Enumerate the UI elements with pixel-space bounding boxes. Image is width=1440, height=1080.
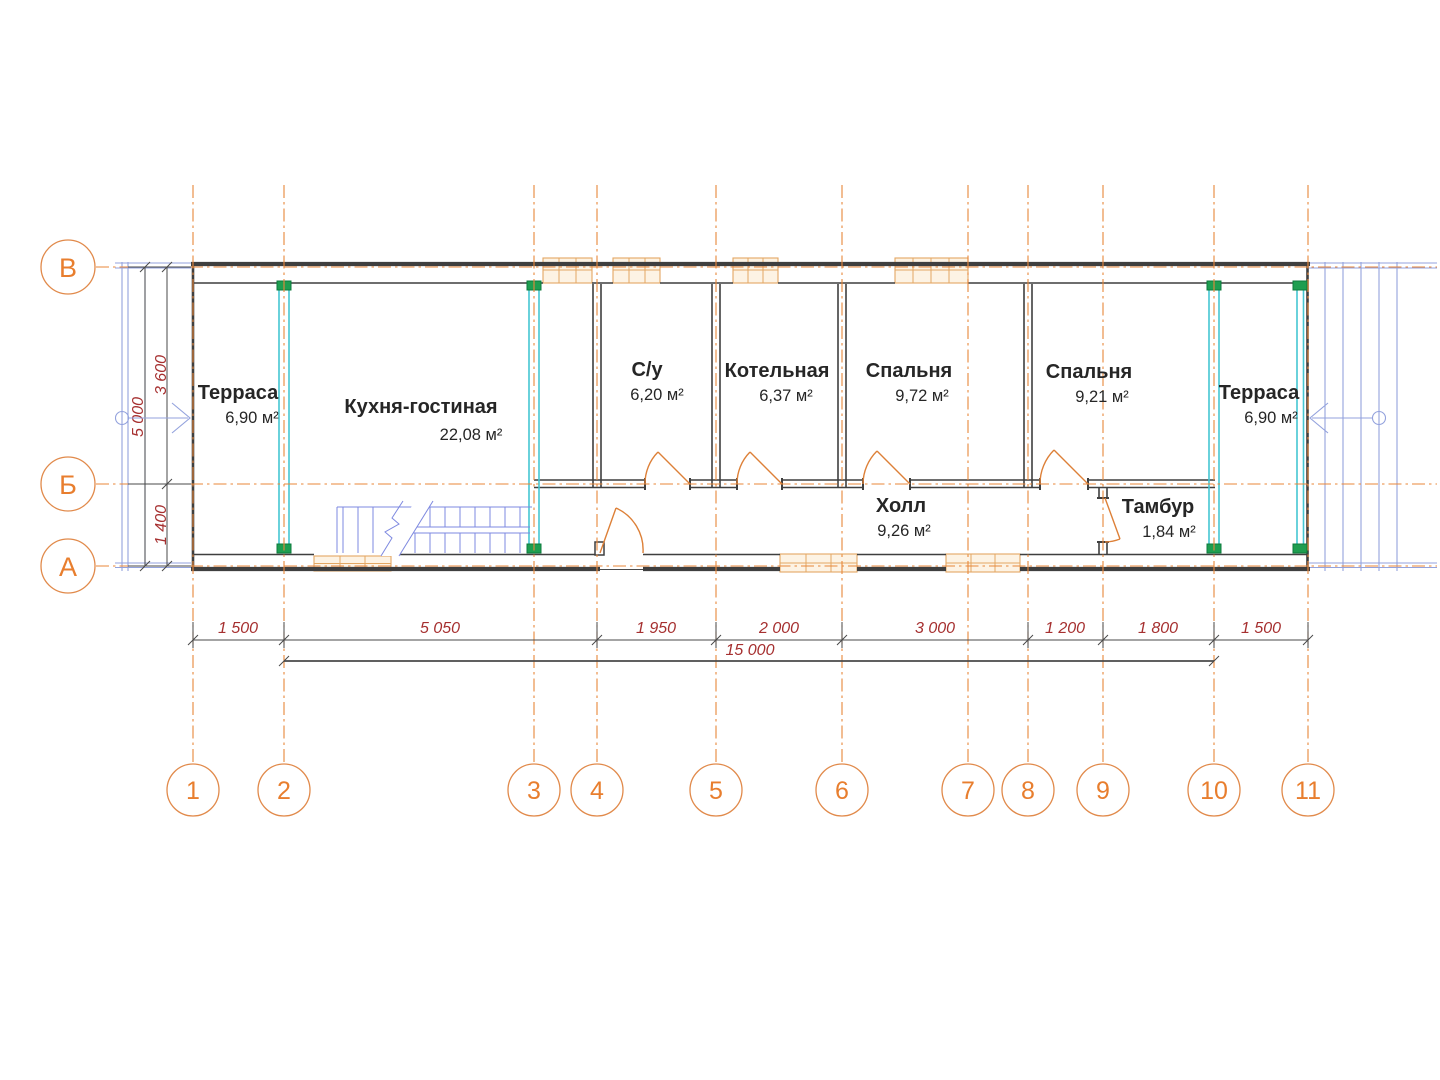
axis-bubble-label: В [59, 253, 77, 283]
room-name: Спальня [866, 360, 952, 382]
row-axis-bubbles: В Б А [41, 240, 95, 593]
dim-label-vertical: 5 000 [130, 397, 147, 437]
post [1293, 281, 1307, 290]
door-boiler [737, 452, 782, 484]
room-name: Терраса [1219, 382, 1300, 404]
door-wc [645, 452, 690, 484]
room-area: 6,90 м² [225, 409, 279, 427]
room-area: 22,08 м² [440, 426, 503, 444]
dim-label: 1 800 [1138, 620, 1178, 637]
room-label-terrace-left: Терраса 6,90 м² [198, 382, 279, 427]
left-section-arrow [116, 403, 191, 433]
dim-label: 1 500 [1241, 620, 1281, 637]
room-name: Холл [876, 495, 926, 517]
room-name: Спальня [1046, 361, 1132, 383]
axis-bubble-label: 8 [1021, 777, 1035, 805]
room-label-boiler: Котельная 6,37 м² [725, 360, 830, 405]
floor-plan-drawing: 1 500 5 050 1 950 2 000 3 000 1 200 1 80… [0, 0, 1440, 1080]
room-area: 9,21 м² [1075, 388, 1129, 406]
stair-treads-left [343, 507, 373, 553]
room-area: 9,72 м² [895, 387, 949, 405]
room-label-hall: Холл 9,26 м² [876, 495, 931, 540]
dim-label: 1 200 [1045, 620, 1085, 637]
axis-bubble-label: 11 [1295, 777, 1321, 805]
dim-label: 1 500 [218, 620, 258, 637]
axis-bubble-label: Б [59, 470, 77, 500]
dim-total-label: 15 000 [726, 642, 775, 659]
room-labels: Терраса 6,90 м² Кухня-гостиная 22,08 м² … [198, 359, 1300, 541]
room-area: 6,37 м² [759, 387, 813, 405]
room-label-bedroom-1: Спальня 9,72 м² [866, 360, 952, 405]
column-axis-bubbles: 1 2 3 4 5 6 7 8 9 10 11 [167, 764, 1334, 816]
room-area: 9,26 м² [877, 522, 931, 540]
room-name: С/у [631, 359, 663, 381]
dim-label-vertical: 1 400 [153, 505, 170, 545]
dim-label: 5 050 [420, 620, 460, 637]
axis-bubble-label: 2 [277, 777, 291, 805]
side-elevation-lines [115, 262, 1437, 571]
axis-bubble-label: 6 [835, 777, 849, 805]
stair-outline [337, 507, 532, 553]
axis-bubble-label: 4 [590, 777, 604, 805]
dim-label: 1 950 [636, 620, 676, 637]
room-label-kitchen: Кухня-гостиная 22,08 м² [344, 396, 502, 444]
axis-bubble-label: А [59, 552, 77, 582]
axis-bubble-label: 10 [1200, 777, 1228, 805]
axis-bubble-label: 3 [527, 777, 541, 805]
doors [600, 450, 1120, 553]
dim-label: 2 000 [758, 620, 799, 637]
room-name: Тамбур [1122, 496, 1195, 518]
door-bedroom-1 [863, 451, 910, 484]
section-arrows [116, 403, 1386, 433]
horizontal-grid-lines [96, 267, 1437, 566]
room-area: 1,84 м² [1142, 523, 1196, 541]
staircase [337, 501, 532, 556]
room-label-wc: С/у 6,20 м² [630, 359, 684, 404]
door-tambour [1105, 498, 1120, 542]
post [1293, 544, 1307, 553]
axis-bubble-label: 1 [186, 777, 200, 805]
room-name: Кухня-гостиная [344, 396, 497, 418]
room-area: 6,90 м² [1244, 409, 1298, 427]
door-bedroom-2 [1040, 450, 1088, 484]
axis-bubble-label: 9 [1096, 777, 1110, 805]
room-name: Котельная [725, 360, 830, 382]
room-area: 6,20 м² [630, 386, 684, 404]
stair-break-mask [381, 501, 433, 556]
room-label-terrace-right: Терраса 6,90 м² [1219, 382, 1300, 427]
door-entry [600, 508, 643, 553]
axis-bubble-label: 5 [709, 777, 723, 805]
dim-label-vertical: 3 600 [153, 355, 170, 395]
axis-bubble-label: 7 [961, 777, 975, 805]
floor-plan-canvas: 1 500 5 050 1 950 2 000 3 000 1 200 1 80… [0, 0, 1440, 1080]
dim-label: 3 000 [915, 620, 955, 637]
room-label-bedroom-2: Спальня 9,21 м² [1046, 361, 1132, 406]
top-wall-windows [543, 258, 968, 283]
right-section-arrow [1310, 403, 1386, 433]
room-name: Терраса [198, 382, 279, 404]
room-label-tambour: Тамбур 1,84 м² [1122, 496, 1197, 541]
